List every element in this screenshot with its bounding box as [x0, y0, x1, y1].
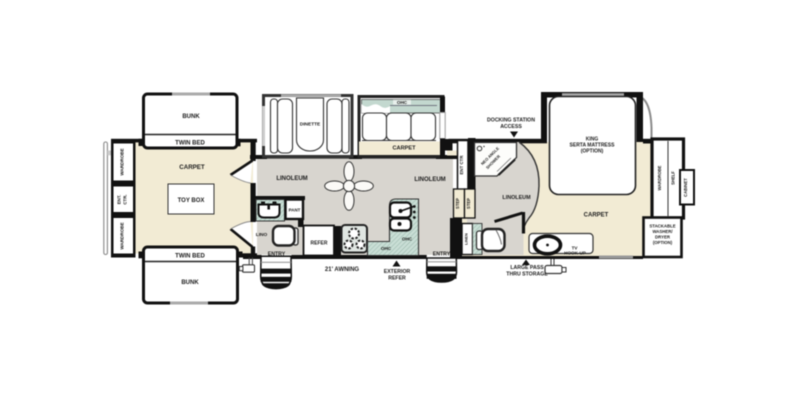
svg-text:OHC: OHC — [381, 246, 392, 251]
svg-text:CARPET: CARPET — [393, 146, 417, 152]
svg-text:(OPTION): (OPTION) — [581, 149, 604, 155]
svg-text:PANT: PANT — [289, 208, 301, 213]
svg-text:ENT.: ENT. — [117, 195, 122, 205]
svg-text:WARDROBE: WARDROBE — [657, 165, 662, 190]
svg-text:(OPTION): (OPTION) — [653, 240, 673, 245]
svg-text:OHC: OHC — [402, 237, 413, 242]
svg-text:TWIN BED: TWIN BED — [175, 254, 205, 260]
svg-text:DINETTE: DINETTE — [300, 122, 321, 128]
svg-text:CARPET: CARPET — [584, 213, 609, 219]
svg-text:ACCESS: ACCESS — [500, 124, 522, 130]
svg-text:DRYER: DRYER — [655, 235, 671, 240]
svg-text:HOOK-UP: HOOK-UP — [564, 251, 586, 256]
svg-text:EXTERIOR: EXTERIOR — [384, 269, 411, 275]
svg-text:TWIN BED: TWIN BED — [175, 141, 205, 147]
svg-text:CARPET: CARPET — [179, 164, 205, 171]
svg-text:REFER: REFER — [311, 241, 328, 247]
svg-text:LARGE PASS: LARGE PASS — [510, 265, 544, 271]
svg-text:THRU STORAGE: THRU STORAGE — [506, 272, 548, 278]
svg-text:WARDROBE: WARDROBE — [120, 148, 125, 175]
svg-text:STEP: STEP — [455, 198, 460, 209]
svg-text:LINEN: LINEN — [463, 233, 468, 245]
svg-text:LINO: LINO — [256, 232, 268, 238]
svg-text:21' AWNING: 21' AWNING — [325, 267, 360, 273]
svg-text:ENT CTR: ENT CTR — [459, 155, 464, 175]
svg-text:REFER: REFER — [388, 276, 406, 282]
svg-text:ENTRY: ENTRY — [433, 252, 451, 258]
svg-text:STACKABLE: STACKABLE — [649, 224, 675, 229]
svg-text:BUNK: BUNK — [181, 280, 199, 286]
svg-text:TOY BOX: TOY BOX — [178, 198, 205, 204]
svg-text:LINOLEUM: LINOLEUM — [414, 177, 445, 183]
svg-text:STEP: STEP — [466, 198, 471, 209]
svg-text:WARDROBE: WARDROBE — [120, 222, 125, 249]
svg-text:LINOLEUM: LINOLEUM — [276, 176, 307, 182]
svg-text:BUNK: BUNK — [182, 114, 200, 120]
svg-text:LINOLEUM: LINOLEUM — [502, 195, 531, 201]
svg-text:SHELF: SHELF — [671, 171, 676, 185]
svg-text:CABINET: CABINET — [683, 178, 688, 197]
svg-text:OHC: OHC — [397, 100, 408, 105]
svg-text:DOCKING STATION: DOCKING STATION — [487, 118, 535, 124]
svg-text:CTR.: CTR. — [123, 194, 128, 204]
svg-text:WASHER/: WASHER/ — [652, 229, 673, 234]
